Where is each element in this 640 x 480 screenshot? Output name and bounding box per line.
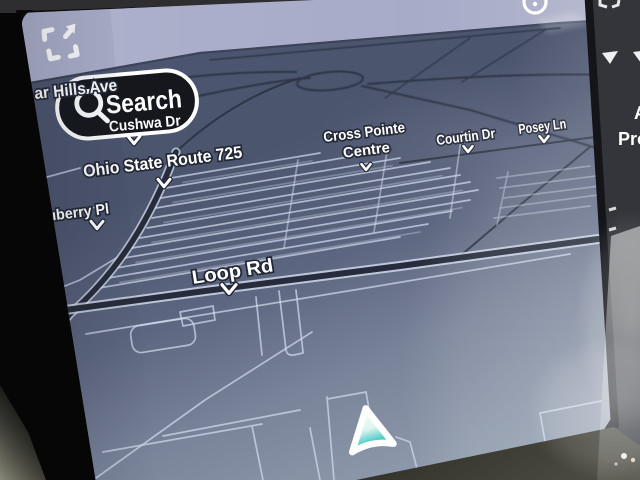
svg-text:Pro: Pro: [618, 129, 640, 149]
svg-text:A: A: [634, 103, 640, 123]
